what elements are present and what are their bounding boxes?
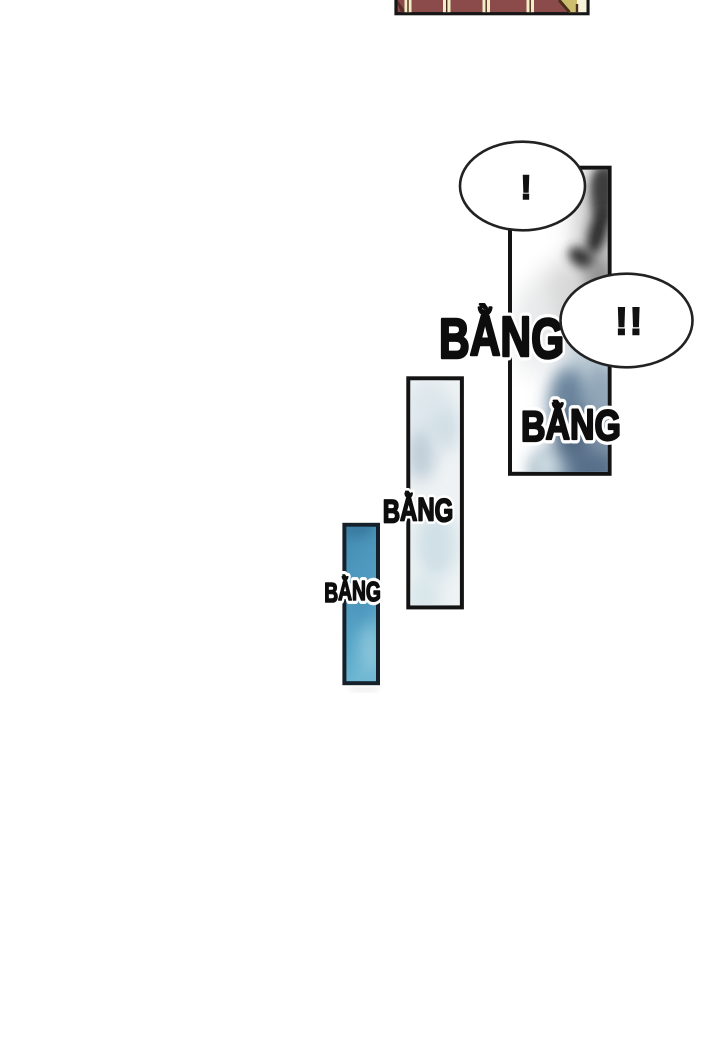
svg-text:BẰNG: BẰNG (324, 574, 381, 609)
svg-text:BẰNG: BẰNG (383, 492, 454, 530)
svg-text:!!: !! (615, 301, 644, 344)
svg-text:BẰNG: BẰNG (439, 304, 564, 370)
svg-text:BẰNG: BẰNG (521, 400, 621, 451)
svg-text:!: ! (520, 169, 531, 207)
